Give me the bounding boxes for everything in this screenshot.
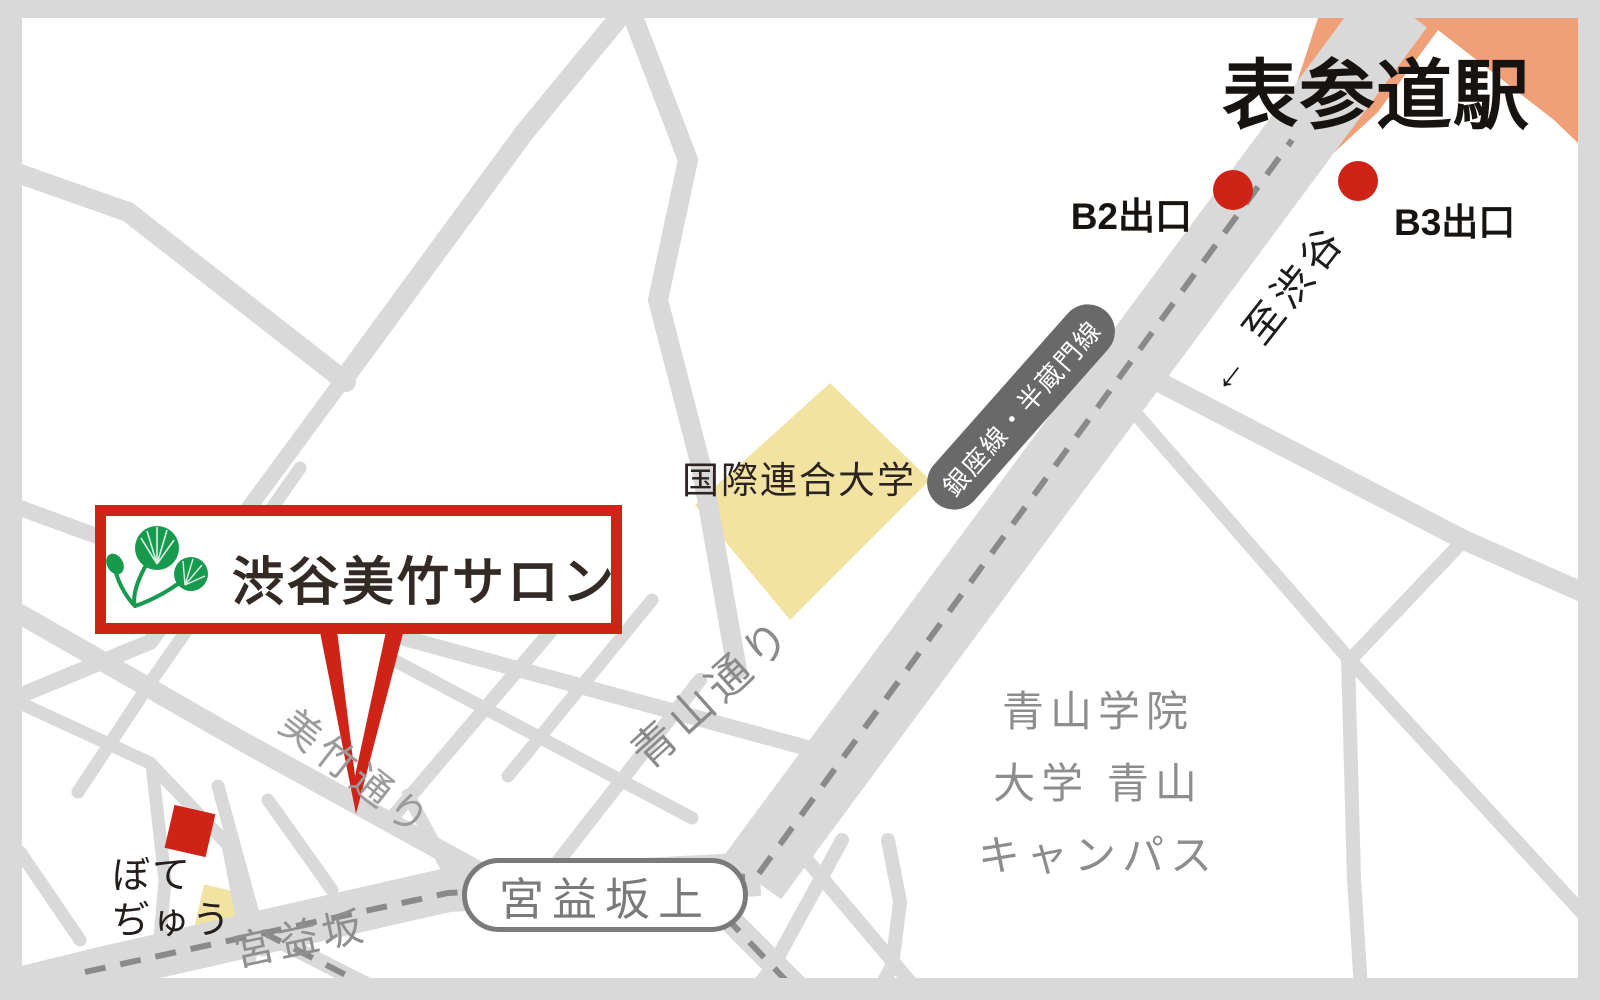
map-canvas: 表参道駅 B2出口 B3出口 ← 至渋谷 銀座線・半蔵門線 青山通り 美竹通り … (0, 0, 1600, 1000)
aoyama-gakuin-line3: キャンパス (958, 820, 1238, 892)
exit-b2-label: B2出口 (1020, 186, 1192, 240)
botejyu-line2: ぢゅう (112, 899, 232, 944)
botejyu-line1: ぼて (112, 854, 232, 899)
botejyu-label: ぼて ぢゅう (112, 854, 232, 944)
exit-b3-label: B3出口 (1394, 192, 1515, 246)
miyamasuzaka-ue-badge: 宮益坂上 (462, 858, 748, 932)
un-university-label: 国際連合大学 (682, 450, 916, 504)
aoyama-gakuin-line2: 大学 青山 (958, 748, 1238, 820)
exit-b3-dot (1338, 161, 1378, 201)
salon-name: 渋谷美竹サロン (232, 540, 617, 615)
futaba-aoi-leaf-icon (105, 512, 235, 632)
station-name: 表参道駅 (1222, 34, 1562, 144)
aoyama-gakuin-line1: 青山学院 (958, 676, 1238, 748)
exit-b2-dot (1213, 170, 1253, 210)
miyamasuzaka-ue-text: 宮益坂上 (499, 863, 711, 928)
aoyama-gakuin-label: 青山学院 大学 青山 キャンパス (958, 676, 1238, 893)
